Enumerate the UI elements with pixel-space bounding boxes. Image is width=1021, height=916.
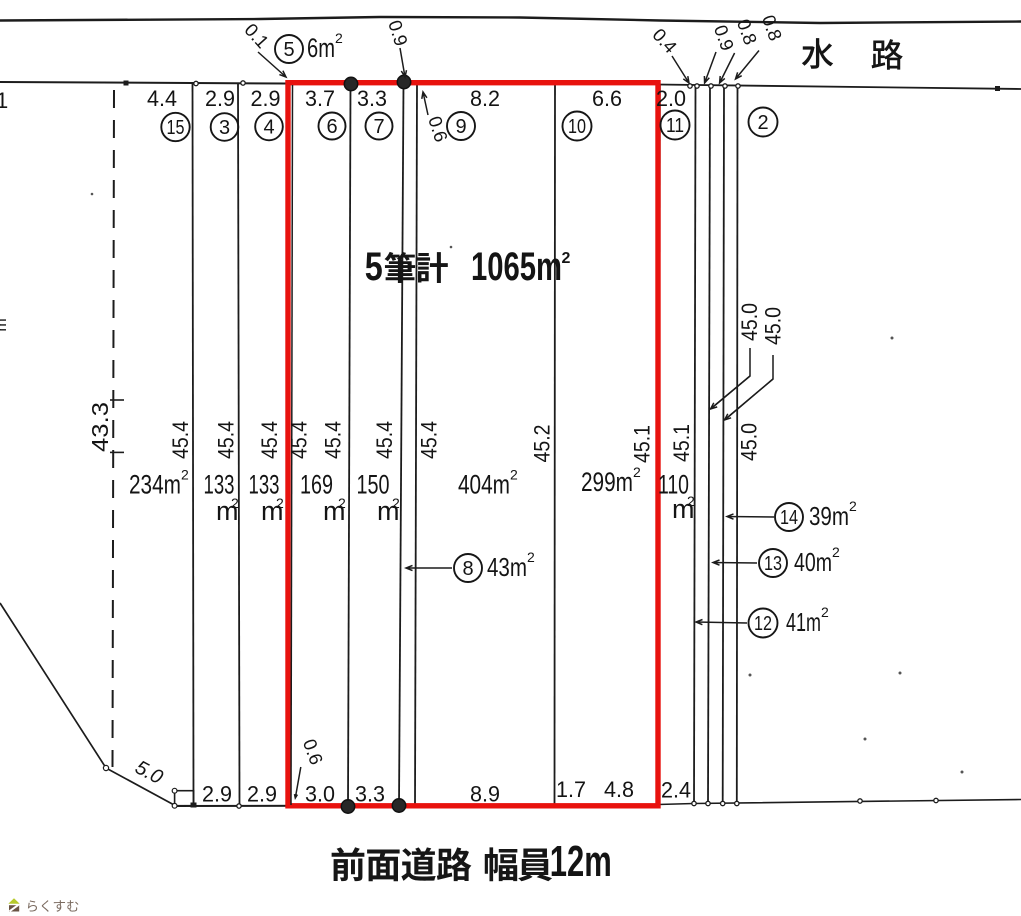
svg-text:3.7: 3.7 <box>305 86 335 111</box>
svg-text:2.0: 2.0 <box>656 86 686 111</box>
svg-text:2: 2 <box>849 498 857 514</box>
svg-text:2: 2 <box>338 495 346 511</box>
svg-text:2.9: 2.9 <box>202 782 232 807</box>
svg-text:2: 2 <box>821 604 829 620</box>
svg-text:m: m <box>0 318 10 331</box>
svg-text:2.9: 2.9 <box>251 86 281 111</box>
svg-text:8.9: 8.9 <box>470 782 500 807</box>
svg-text:45.0: 45.0 <box>761 307 786 345</box>
svg-text:2.4: 2.4 <box>661 778 691 803</box>
svg-text:14: 14 <box>780 507 798 529</box>
svg-text:9: 9 <box>455 116 466 138</box>
svg-text:2: 2 <box>510 467 518 483</box>
svg-text:2: 2 <box>181 467 189 483</box>
svg-text:10: 10 <box>568 116 586 138</box>
svg-text:12: 12 <box>754 613 772 635</box>
svg-text:6: 6 <box>326 116 337 138</box>
svg-text:43.3: 43.3 <box>87 402 113 452</box>
svg-text:2: 2 <box>276 495 284 511</box>
svg-text:2.9: 2.9 <box>205 86 235 111</box>
svg-text:4: 4 <box>263 117 274 139</box>
svg-text:40m: 40m <box>794 547 832 577</box>
svg-text:6m: 6m <box>307 33 335 63</box>
svg-text:5: 5 <box>365 245 383 289</box>
svg-text:45.4: 45.4 <box>257 421 282 459</box>
svg-text:8.2: 8.2 <box>470 86 500 111</box>
svg-text:45.4: 45.4 <box>214 421 239 459</box>
svg-text:4.8: 4.8 <box>604 777 634 802</box>
svg-text:2: 2 <box>832 544 840 560</box>
svg-text:45.1: 45.1 <box>669 424 694 462</box>
svg-text:2: 2 <box>527 549 535 565</box>
svg-text:3.0: 3.0 <box>305 782 335 807</box>
svg-text:7: 7 <box>373 116 384 138</box>
svg-text:5: 5 <box>283 39 294 61</box>
svg-text:1.7: 1.7 <box>556 777 586 802</box>
svg-text:1065m: 1065m <box>471 245 562 289</box>
svg-text:299m: 299m <box>581 467 633 497</box>
svg-text:11: 11 <box>666 115 684 137</box>
svg-text:133: 133 <box>249 470 280 500</box>
svg-text:1: 1 <box>0 88 8 113</box>
svg-text:45.4: 45.4 <box>372 421 397 459</box>
svg-text:2: 2 <box>757 112 768 134</box>
svg-text:45.4: 45.4 <box>417 421 442 459</box>
svg-text:45.1: 45.1 <box>630 425 655 463</box>
svg-text:43m: 43m <box>487 552 527 582</box>
svg-text:2.9: 2.9 <box>247 782 277 807</box>
svg-text:2: 2 <box>687 493 695 509</box>
svg-text:169: 169 <box>300 470 333 500</box>
svg-text:45.0: 45.0 <box>737 423 762 461</box>
svg-text:15: 15 <box>167 117 185 139</box>
svg-text:12m: 12m <box>550 837 612 886</box>
svg-text:45.4: 45.4 <box>287 421 312 459</box>
svg-text:2: 2 <box>231 495 239 511</box>
svg-text:2: 2 <box>633 464 641 480</box>
svg-text:133: 133 <box>204 470 235 500</box>
svg-text:404m: 404m <box>458 470 510 500</box>
svg-text:2: 2 <box>392 495 400 511</box>
svg-text:3: 3 <box>219 117 230 139</box>
svg-text:39m: 39m <box>809 501 849 531</box>
svg-text:45.4: 45.4 <box>321 421 346 459</box>
svg-text:3.3: 3.3 <box>357 86 387 111</box>
svg-text:45.2: 45.2 <box>530 425 555 463</box>
svg-text:3.3: 3.3 <box>355 782 385 807</box>
svg-text:41m: 41m <box>786 607 821 637</box>
svg-text:2: 2 <box>562 250 571 267</box>
svg-text:234m: 234m <box>129 470 181 500</box>
svg-text:4.4: 4.4 <box>147 86 177 111</box>
svg-text:13: 13 <box>764 553 782 575</box>
svg-text:150: 150 <box>357 470 390 500</box>
svg-text:6.6: 6.6 <box>592 86 622 111</box>
svg-text:8: 8 <box>462 558 473 580</box>
svg-text:2: 2 <box>335 30 343 46</box>
svg-text:45.0: 45.0 <box>737 303 762 341</box>
svg-text:45.4: 45.4 <box>168 421 193 459</box>
